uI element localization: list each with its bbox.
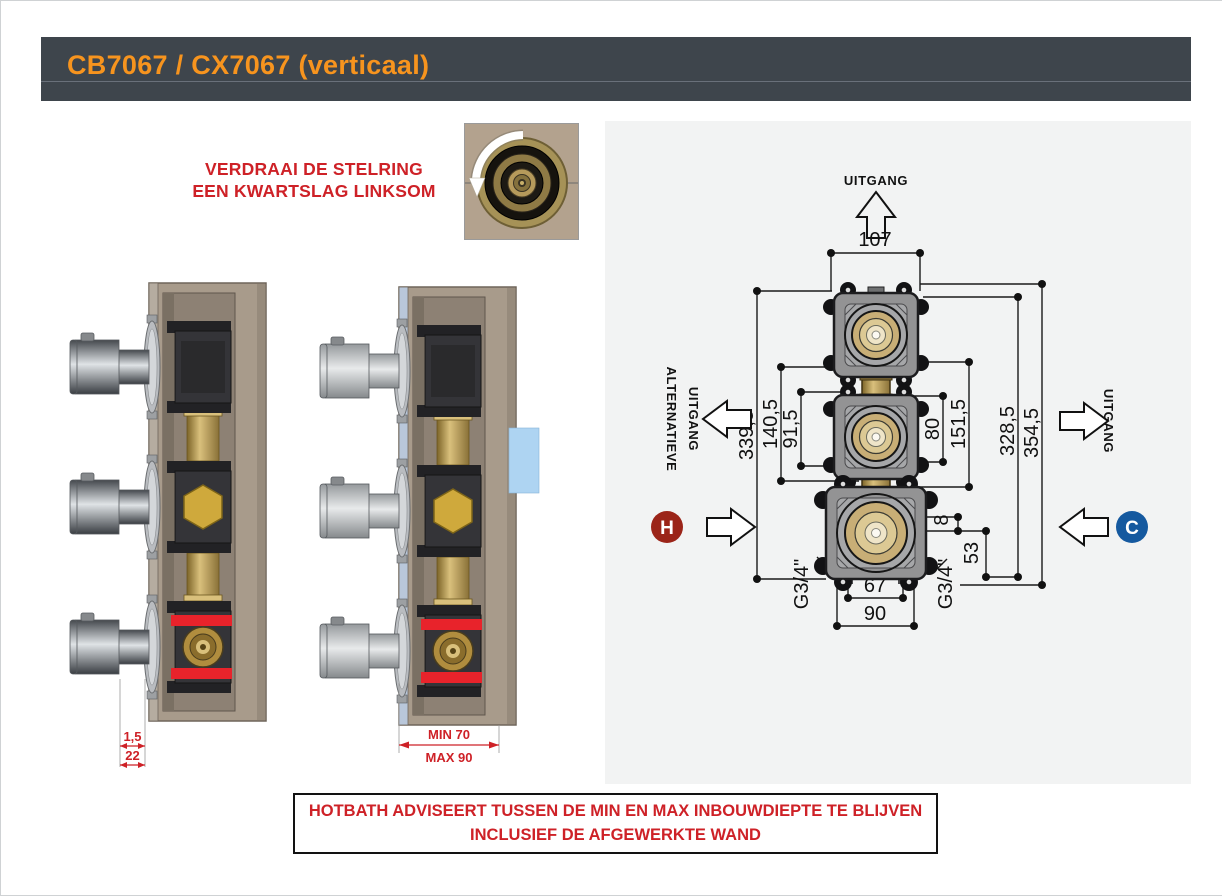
- dim-right-total-label: 354,5: [1021, 408, 1043, 458]
- cross-section-render-left: 1,5 22: [63, 279, 269, 778]
- dim-tile-label: 1,5: [123, 729, 141, 744]
- valve-unit-bottom: [814, 475, 938, 591]
- dimension-diagram-panel: UITGANG 107 339,5: [605, 121, 1191, 784]
- cold-arrow-icon: [1060, 509, 1108, 545]
- r1-svg: 1,5 22: [63, 279, 269, 773]
- valve-unit-middle: [823, 384, 929, 490]
- dim-bottom-offset-label: 53: [961, 542, 983, 564]
- outlet-left-label-line1: ALTERNATIEVE: [664, 367, 679, 472]
- technical-diagram: UITGANG 107 339,5: [605, 121, 1191, 784]
- outlet-left-label-line2: UITGANG: [686, 387, 701, 451]
- handle-mid: [70, 473, 149, 534]
- dim-left-mid-label: 140,5: [760, 399, 782, 449]
- cross-section-render-right: MIN 70 MAX 90: [313, 283, 541, 780]
- notice-line2: INCLUSIEF DE AFGEWERKTE WAND: [470, 824, 761, 848]
- dim-top-width-label: 107: [858, 229, 891, 251]
- dim-bottom-offset: 53: [961, 527, 990, 581]
- advice-notice-box: HOTBATH ADVISEERT TUSSEN DE MIN EN MAX I…: [293, 793, 938, 854]
- handle-bot: [320, 617, 399, 678]
- dim-offset-small-label: 8: [931, 514, 953, 525]
- instruction-line2: EEN KWARTSLAG LINKSOM: [149, 180, 479, 202]
- thread-left-label: G3/4": [791, 559, 813, 609]
- valve-cartridge-top: [70, 315, 231, 419]
- page: CB7067 / CX7067 (verticaal) VERDRAAI DE …: [0, 0, 1222, 896]
- cold-badge-label: C: [1125, 518, 1139, 539]
- valve-cartridge-top: [320, 319, 481, 423]
- depth-dimension: 1,5 22: [120, 679, 145, 768]
- finished-wall-indicator: [509, 428, 539, 493]
- instruction-line1: VERDRAAI DE STELRING: [149, 158, 479, 180]
- stelring-image: [464, 123, 579, 240]
- r2-svg: MIN 70 MAX 90: [313, 283, 541, 775]
- dim-top-width: 107: [827, 229, 924, 291]
- thread-right-label: G3/4": [935, 559, 957, 609]
- header-bar: CB7067 / CX7067 (verticaal): [41, 37, 1191, 101]
- handle-mid: [320, 477, 399, 538]
- outlet-top-label: UITGANG: [844, 173, 908, 188]
- hot-badge-label: H: [660, 518, 674, 539]
- header-divider: [41, 81, 1191, 82]
- dim-min-depth-label: MIN 70: [428, 727, 470, 742]
- brass-tube: [437, 417, 469, 465]
- dim-max-depth-label: MAX 90: [426, 750, 473, 765]
- dim-left-inner-label: 91,5: [780, 410, 802, 449]
- valve-cartridge-bot: [320, 599, 482, 703]
- brass-tube: [437, 557, 469, 605]
- handle-top: [70, 333, 149, 394]
- valve-cartridge-bot: [70, 595, 232, 699]
- valve-cartridge-mid: [70, 455, 231, 559]
- brass-tube: [187, 553, 219, 601]
- right-arrow-icon: [1060, 403, 1108, 439]
- dim-plate-label: 22: [125, 748, 139, 763]
- hot-arrow-icon: [707, 509, 755, 545]
- dim-right-inner-label: 80: [922, 418, 944, 440]
- dim-body-width-label: 90: [864, 603, 886, 625]
- handle-bot: [70, 613, 149, 674]
- valve-cartridge-mid: [320, 459, 481, 563]
- dim-right-mid-label: 151,5: [948, 399, 970, 449]
- brass-tube: [187, 413, 219, 461]
- notice-line1: HOTBATH ADVISEERT TUSSEN DE MIN EN MAX I…: [309, 800, 922, 824]
- page-title: CB7067 / CX7067 (verticaal): [67, 50, 429, 81]
- valve-unit-top: [823, 282, 929, 388]
- instruction-text: VERDRAAI DE STELRING EEN KWARTSLAG LINKS…: [149, 158, 479, 203]
- handle-top: [320, 337, 399, 398]
- dim-right-outer-label: 328,5: [997, 406, 1019, 456]
- stelring-svg: [465, 124, 578, 239]
